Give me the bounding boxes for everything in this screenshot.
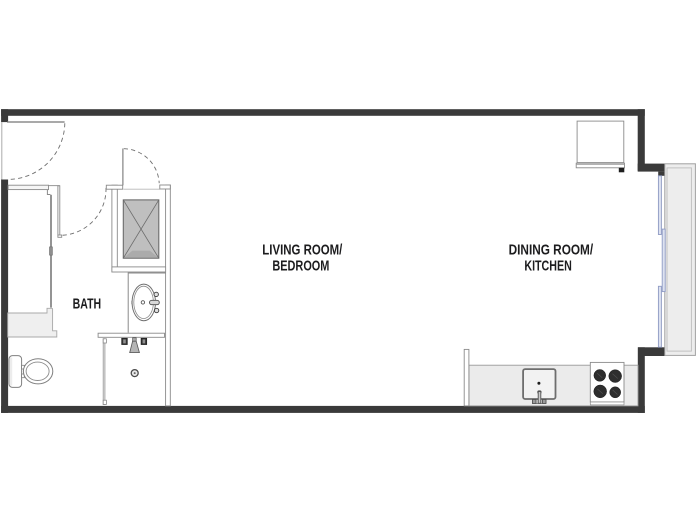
svg-text:BEDROOM: BEDROOM bbox=[272, 258, 329, 274]
svg-text:KITCHEN: KITCHEN bbox=[524, 258, 572, 274]
svg-text:LIVING ROOM/: LIVING ROOM/ bbox=[262, 243, 342, 259]
svg-text:BATH: BATH bbox=[73, 297, 102, 313]
svg-text:DINING ROOM/: DINING ROOM/ bbox=[509, 243, 594, 259]
